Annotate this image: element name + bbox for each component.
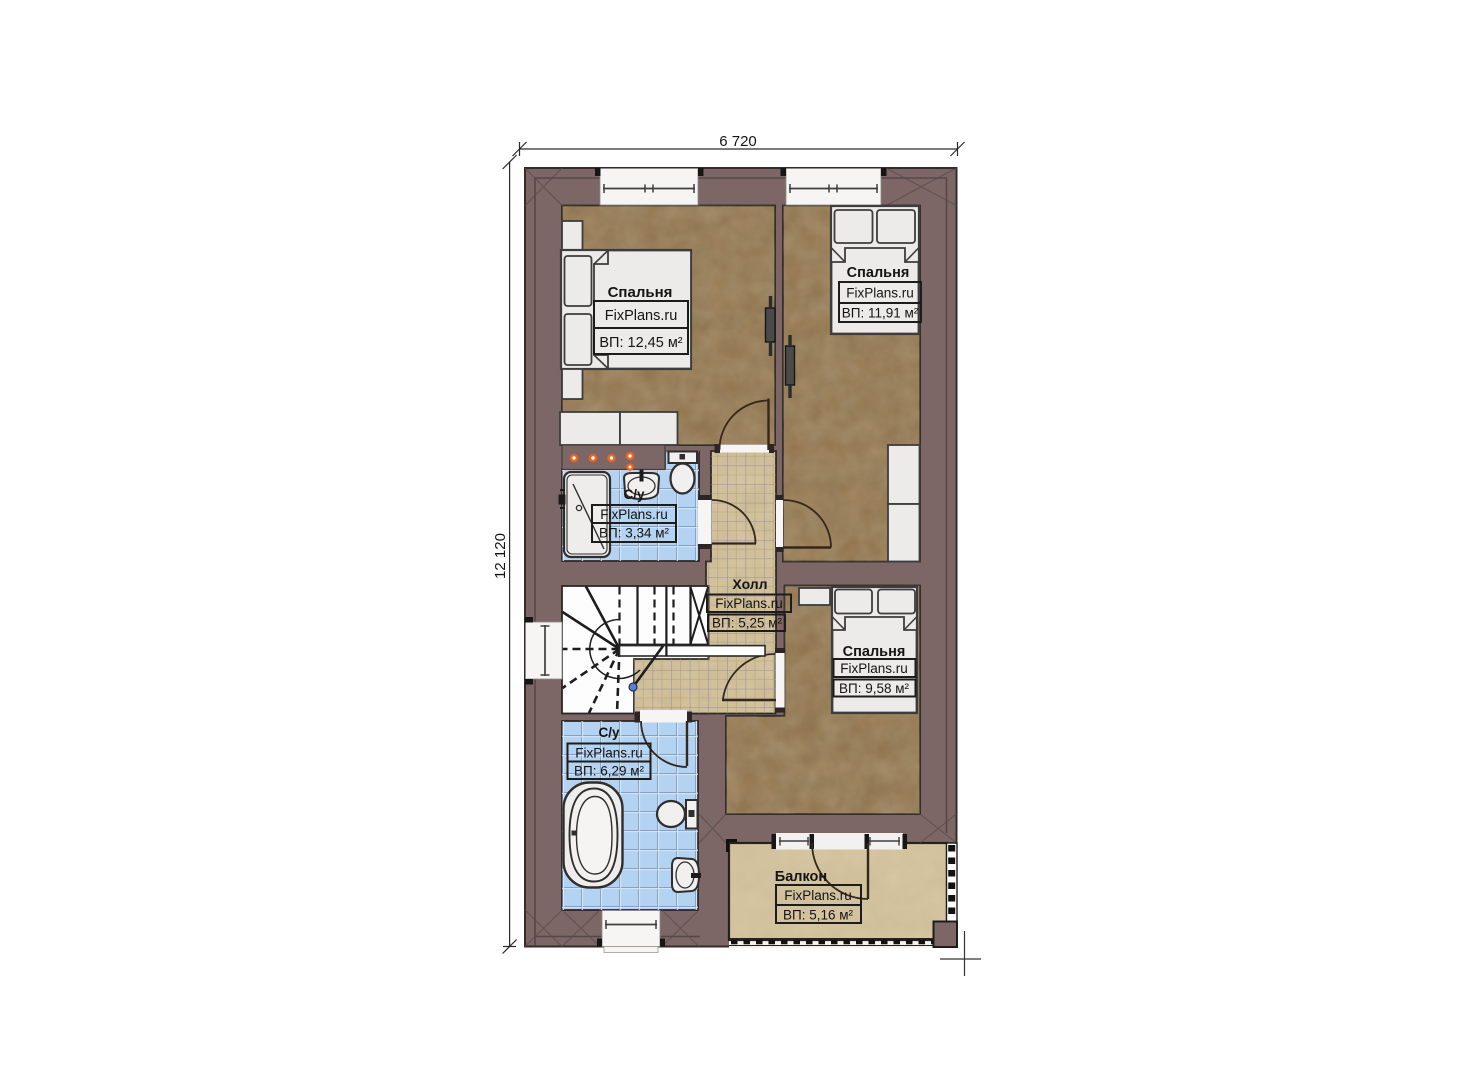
svg-text:Холл: Холл — [732, 576, 767, 592]
svg-text:ВП: 12,45 м²: ВП: 12,45 м² — [599, 335, 682, 351]
svg-text:ВП: 3,34 м²: ВП: 3,34 м² — [599, 526, 670, 541]
svg-text:FixPlans.ru: FixPlans.ru — [715, 596, 783, 611]
svg-text:FixPlans.ru: FixPlans.ru — [575, 746, 643, 761]
svg-text:Спальня: Спальня — [843, 644, 906, 660]
svg-text:Спальня: Спальня — [608, 284, 673, 301]
svg-text:FixPlans.ru: FixPlans.ru — [605, 308, 678, 324]
svg-text:С/у: С/у — [598, 725, 620, 740]
svg-text:12 120: 12 120 — [492, 533, 509, 579]
svg-text:ВП: 6,29 м²: ВП: 6,29 м² — [574, 764, 645, 779]
svg-text:Балкон: Балкон — [775, 869, 827, 885]
svg-text:С/у: С/у — [623, 487, 645, 502]
svg-text:ВП: 5,25 м²: ВП: 5,25 м² — [712, 616, 783, 631]
svg-text:FixPlans.ru: FixPlans.ru — [846, 286, 914, 301]
svg-text:ВП: 5,16 м²: ВП: 5,16 м² — [783, 908, 854, 923]
svg-text:FixPlans.ru: FixPlans.ru — [784, 888, 852, 903]
svg-text:6 720: 6 720 — [719, 133, 757, 150]
svg-text:Спальня: Спальня — [847, 265, 910, 281]
svg-text:FixPlans.ru: FixPlans.ru — [600, 507, 668, 522]
svg-text:ВП: 9,58 м²: ВП: 9,58 м² — [839, 681, 910, 696]
svg-text:FixPlans.ru: FixPlans.ru — [840, 661, 908, 676]
svg-text:ВП: 11,91 м²: ВП: 11,91 м² — [842, 306, 919, 321]
